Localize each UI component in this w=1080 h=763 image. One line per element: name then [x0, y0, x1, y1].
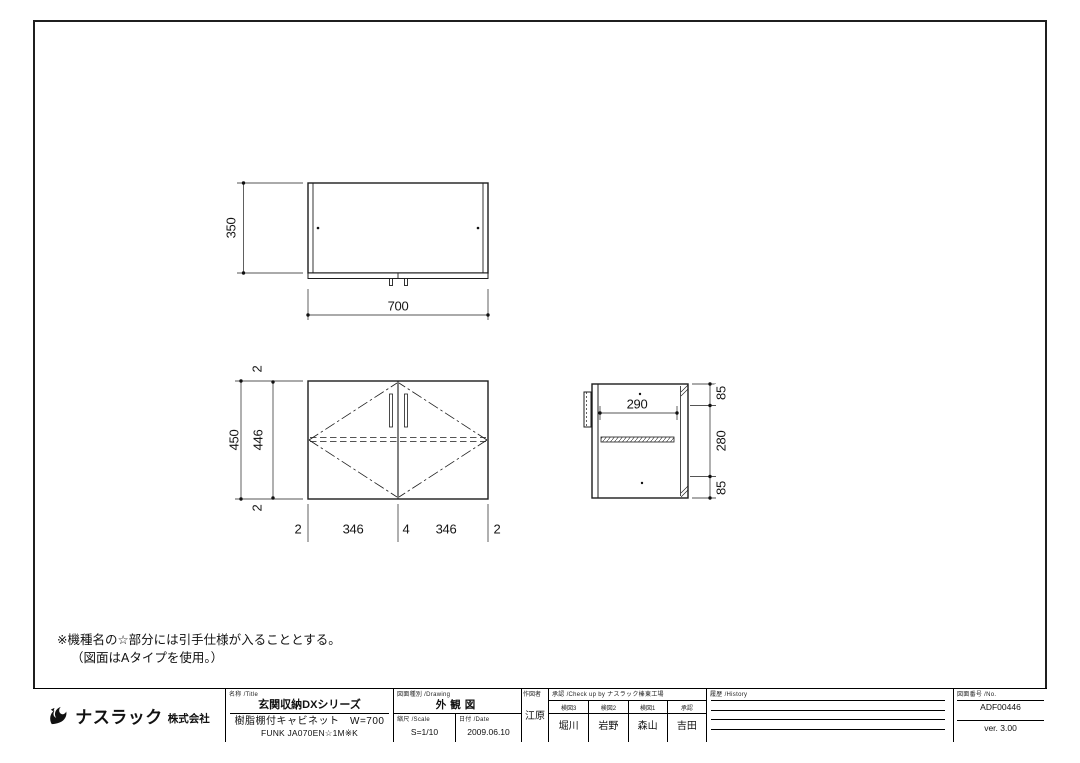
- number-divider: [957, 720, 1044, 721]
- drawing-type: 外観図: [394, 699, 521, 712]
- note-line1: ※機種名の☆部分には引手仕様が入ることとする。: [57, 631, 341, 649]
- company-logo-icon: [48, 706, 70, 726]
- company-suffix: 株式会社: [168, 711, 210, 726]
- dim-front-overall: 450: [228, 428, 241, 453]
- check-name: 岩野: [588, 714, 627, 742]
- number-cell: 図面番号 /No. ADF00446 ver. 3.00: [953, 689, 1047, 742]
- history-row-line: [711, 729, 945, 730]
- check-name: 堀川: [549, 714, 588, 742]
- model-code: FUNK JA070EN☆1M※K: [226, 728, 393, 738]
- dim-front-inner: 446: [252, 428, 265, 453]
- company-logo: ナスラック 株式会社: [33, 689, 225, 742]
- dim-front-gap-bottom: 2: [251, 503, 264, 514]
- date-header: 日付 /Date: [456, 714, 521, 724]
- check-header: 承認 /Check up by ナスラック榛東工場: [549, 689, 706, 701]
- scale-date-row: 縮尺 /Scale S=1/10 日付 /Date 2009.06.10: [394, 713, 521, 742]
- drawing-cell: 図面種別 /Drawing 外観図 縮尺 /Scale S=1/10 日付 /D…: [393, 689, 521, 742]
- product-series: 玄関収納DXシリーズ: [226, 699, 393, 712]
- scale-header: 縮尺 /Scale: [394, 714, 455, 724]
- check-grid: 検図3 検図2 検図1 承認 堀川 岩野 森山 吉田: [549, 701, 706, 742]
- history-row-line: [711, 710, 945, 711]
- dim-front-b5: 2: [492, 523, 503, 536]
- check-role: 検図2: [588, 701, 627, 714]
- date-cell: 日付 /Date 2009.06.10: [456, 714, 521, 742]
- dim-side-bottom: 85: [715, 479, 728, 497]
- title-header: 名称 /Title: [226, 689, 393, 699]
- dim-side-top: 85: [715, 384, 728, 402]
- drawing-header: 図面種別 /Drawing: [394, 689, 521, 699]
- check-role: 承認: [667, 701, 706, 714]
- number-header: 図面番号 /No.: [954, 689, 1047, 699]
- dim-front-b3: 4: [401, 523, 412, 536]
- check-name: 森山: [628, 714, 667, 742]
- drawing-number: ADF00446: [954, 702, 1047, 712]
- check-cell: 承認 /Check up by ナスラック榛東工場 検図3 検図2 検図1 承認…: [548, 689, 706, 742]
- dim-front-b4: 346: [434, 523, 459, 536]
- product-name: 樹脂棚付キャビネット W=700: [226, 715, 393, 728]
- history-row-line: [711, 700, 945, 701]
- title-divider: [230, 713, 389, 714]
- history-row-line: [711, 719, 945, 720]
- scale-value: S=1/10: [394, 727, 455, 737]
- dim-top-height: 350: [225, 216, 238, 241]
- history-header: 履歴 /History: [707, 689, 953, 699]
- drawing-sheet: 350 700 2 450 446 2 2 346 4 346 2 290 85…: [0, 0, 1080, 763]
- scale-cell: 縮尺 /Scale S=1/10: [394, 714, 456, 742]
- check-name: 吉田: [667, 714, 706, 742]
- title-cell: 名称 /Title 玄関収納DXシリーズ 樹脂棚付キャビネット W=700 FU…: [225, 689, 393, 742]
- date-value: 2009.06.10: [456, 727, 521, 737]
- drafter-header: 作図者: [522, 689, 548, 699]
- note-line2: （図面はAタイプを使用。）: [71, 649, 341, 667]
- title-block: ナスラック 株式会社 名称 /Title 玄関収納DXシリーズ 樹脂棚付キャビネ…: [33, 688, 1047, 742]
- dim-front-gap-top: 2: [251, 364, 264, 375]
- dim-side-depth: 290: [625, 398, 650, 411]
- drawing-version: ver. 3.00: [954, 723, 1047, 733]
- company-name: ナスラック: [75, 703, 163, 728]
- number-divider: [957, 700, 1044, 701]
- history-cell: 履歴 /History: [706, 689, 953, 742]
- dim-front-b1: 2: [293, 523, 304, 536]
- check-role: 検図3: [549, 701, 588, 714]
- drawing-note: ※機種名の☆部分には引手仕様が入ることとする。 （図面はAタイプを使用。）: [57, 631, 341, 667]
- check-role: 検図1: [628, 701, 667, 714]
- dim-top-width: 700: [386, 300, 411, 313]
- drafter-cell: 作図者 江原: [521, 689, 548, 742]
- drafter-name: 江原: [522, 707, 548, 722]
- dim-front-b2: 346: [341, 523, 366, 536]
- dim-side-mid: 280: [715, 429, 728, 454]
